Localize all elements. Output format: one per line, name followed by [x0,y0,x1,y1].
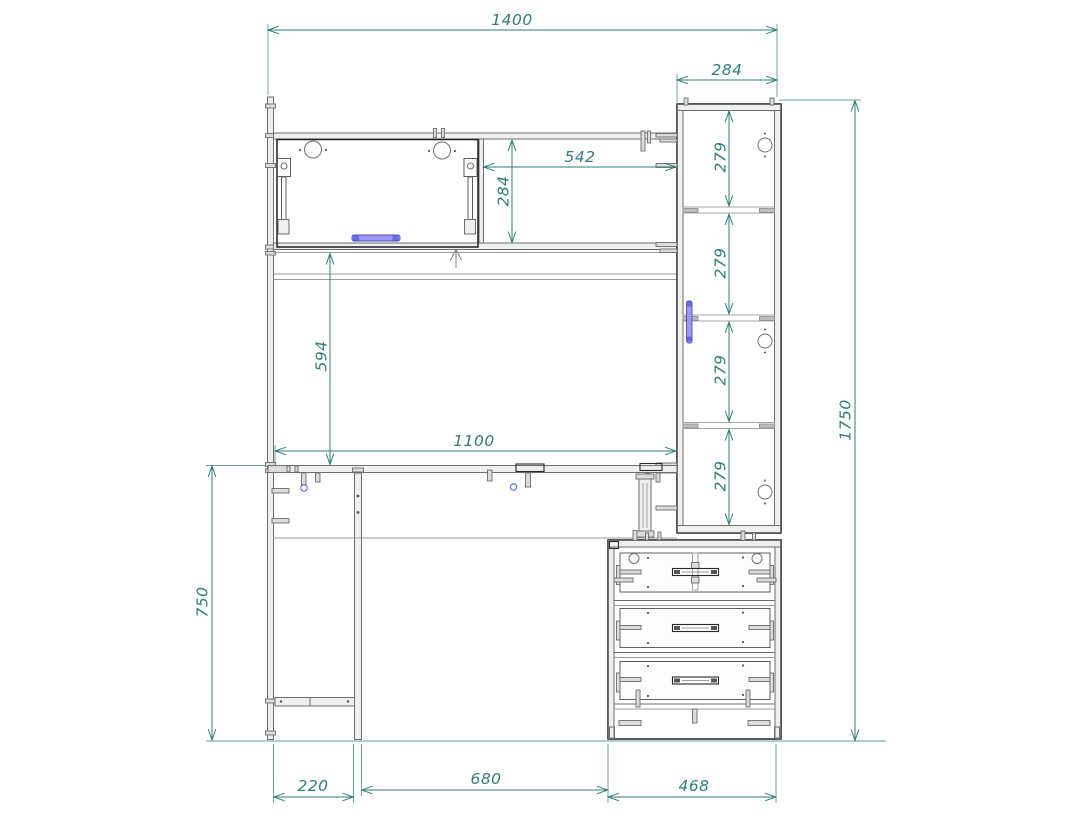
furniture-assembly-drawing: 1400 284 542 284 279 279 279 279 [0,0,1067,830]
drawing-canvas: 1400 284 542 284 279 279 279 279 [0,0,1067,830]
drawer-2 [617,609,774,648]
dim-label-542: 542 [564,148,595,166]
drawer-1 [614,553,776,592]
dim-cabinet-compartments: 279 279 279 279 [712,111,730,525]
hinge-cup-icon [305,141,322,158]
furniture-layer [266,97,782,740]
upper-shelf-unit [274,129,677,280]
cam-bolt-icon [301,485,307,491]
dim-label-1400: 1400 [491,11,532,29]
plinth [610,709,780,738]
gas-strut-left [278,159,291,235]
hinge-cup-icon [434,142,451,159]
drawer-3 [617,662,774,708]
dim-label-1100: 1100 [453,432,494,450]
desk [268,464,677,740]
dim-label-279-1: 279 [712,141,730,172]
hinge-cup-icon [758,334,772,348]
dim-worktop-width: 1100 [275,432,676,463]
dim-label-279-2: 279 [712,247,730,278]
dim-label-680: 680 [470,770,501,788]
dim-knee-space: 680 [362,744,609,796]
flap-door [277,140,478,248]
cabinet-door-handle [687,301,693,343]
worktop [268,464,677,473]
dim-label-750: 750 [194,586,212,617]
dim-label-220: 220 [297,777,328,795]
support-column [636,474,654,537]
dim-worktop-height: 750 [194,466,267,741]
dim-label-1750: 1750 [837,399,855,440]
dim-drawer-unit-width: 468 [608,744,776,803]
dim-label-594: 594 [313,340,331,371]
cabinet-shelf [683,207,775,213]
cam-bolt-icon [510,484,516,490]
dim-overall-height: 1750 [779,100,861,741]
dim-worktop-to-shelf: 594 [313,254,331,465]
dimension-layer: 1400 284 542 284 279 279 279 279 [194,11,887,803]
cabinet-shelf [683,315,775,321]
dim-label-279-3: 279 [712,354,730,385]
door-handle [352,235,400,241]
dim-side-cabinet-width: 284 [677,61,777,102]
dim-label-284-top: 284 [711,61,742,79]
cabinet-shelf [683,423,775,429]
dim-label-279-4: 279 [712,460,730,491]
dim-label-284-shelf: 284 [495,175,513,206]
gas-strut-right [464,159,477,235]
drawer-unit [608,531,781,740]
hinge-cup-icon [758,138,772,152]
dim-shelf-opening-height: 284 [495,140,513,243]
dim-leg-depth: 220 [274,744,354,803]
hinge-cup-icon [758,485,772,499]
support-rail [275,698,355,707]
shelf-divider-panel [479,139,484,243]
dim-overall-width: 1400 [268,11,777,97]
dim-label-468: 468 [678,777,709,795]
